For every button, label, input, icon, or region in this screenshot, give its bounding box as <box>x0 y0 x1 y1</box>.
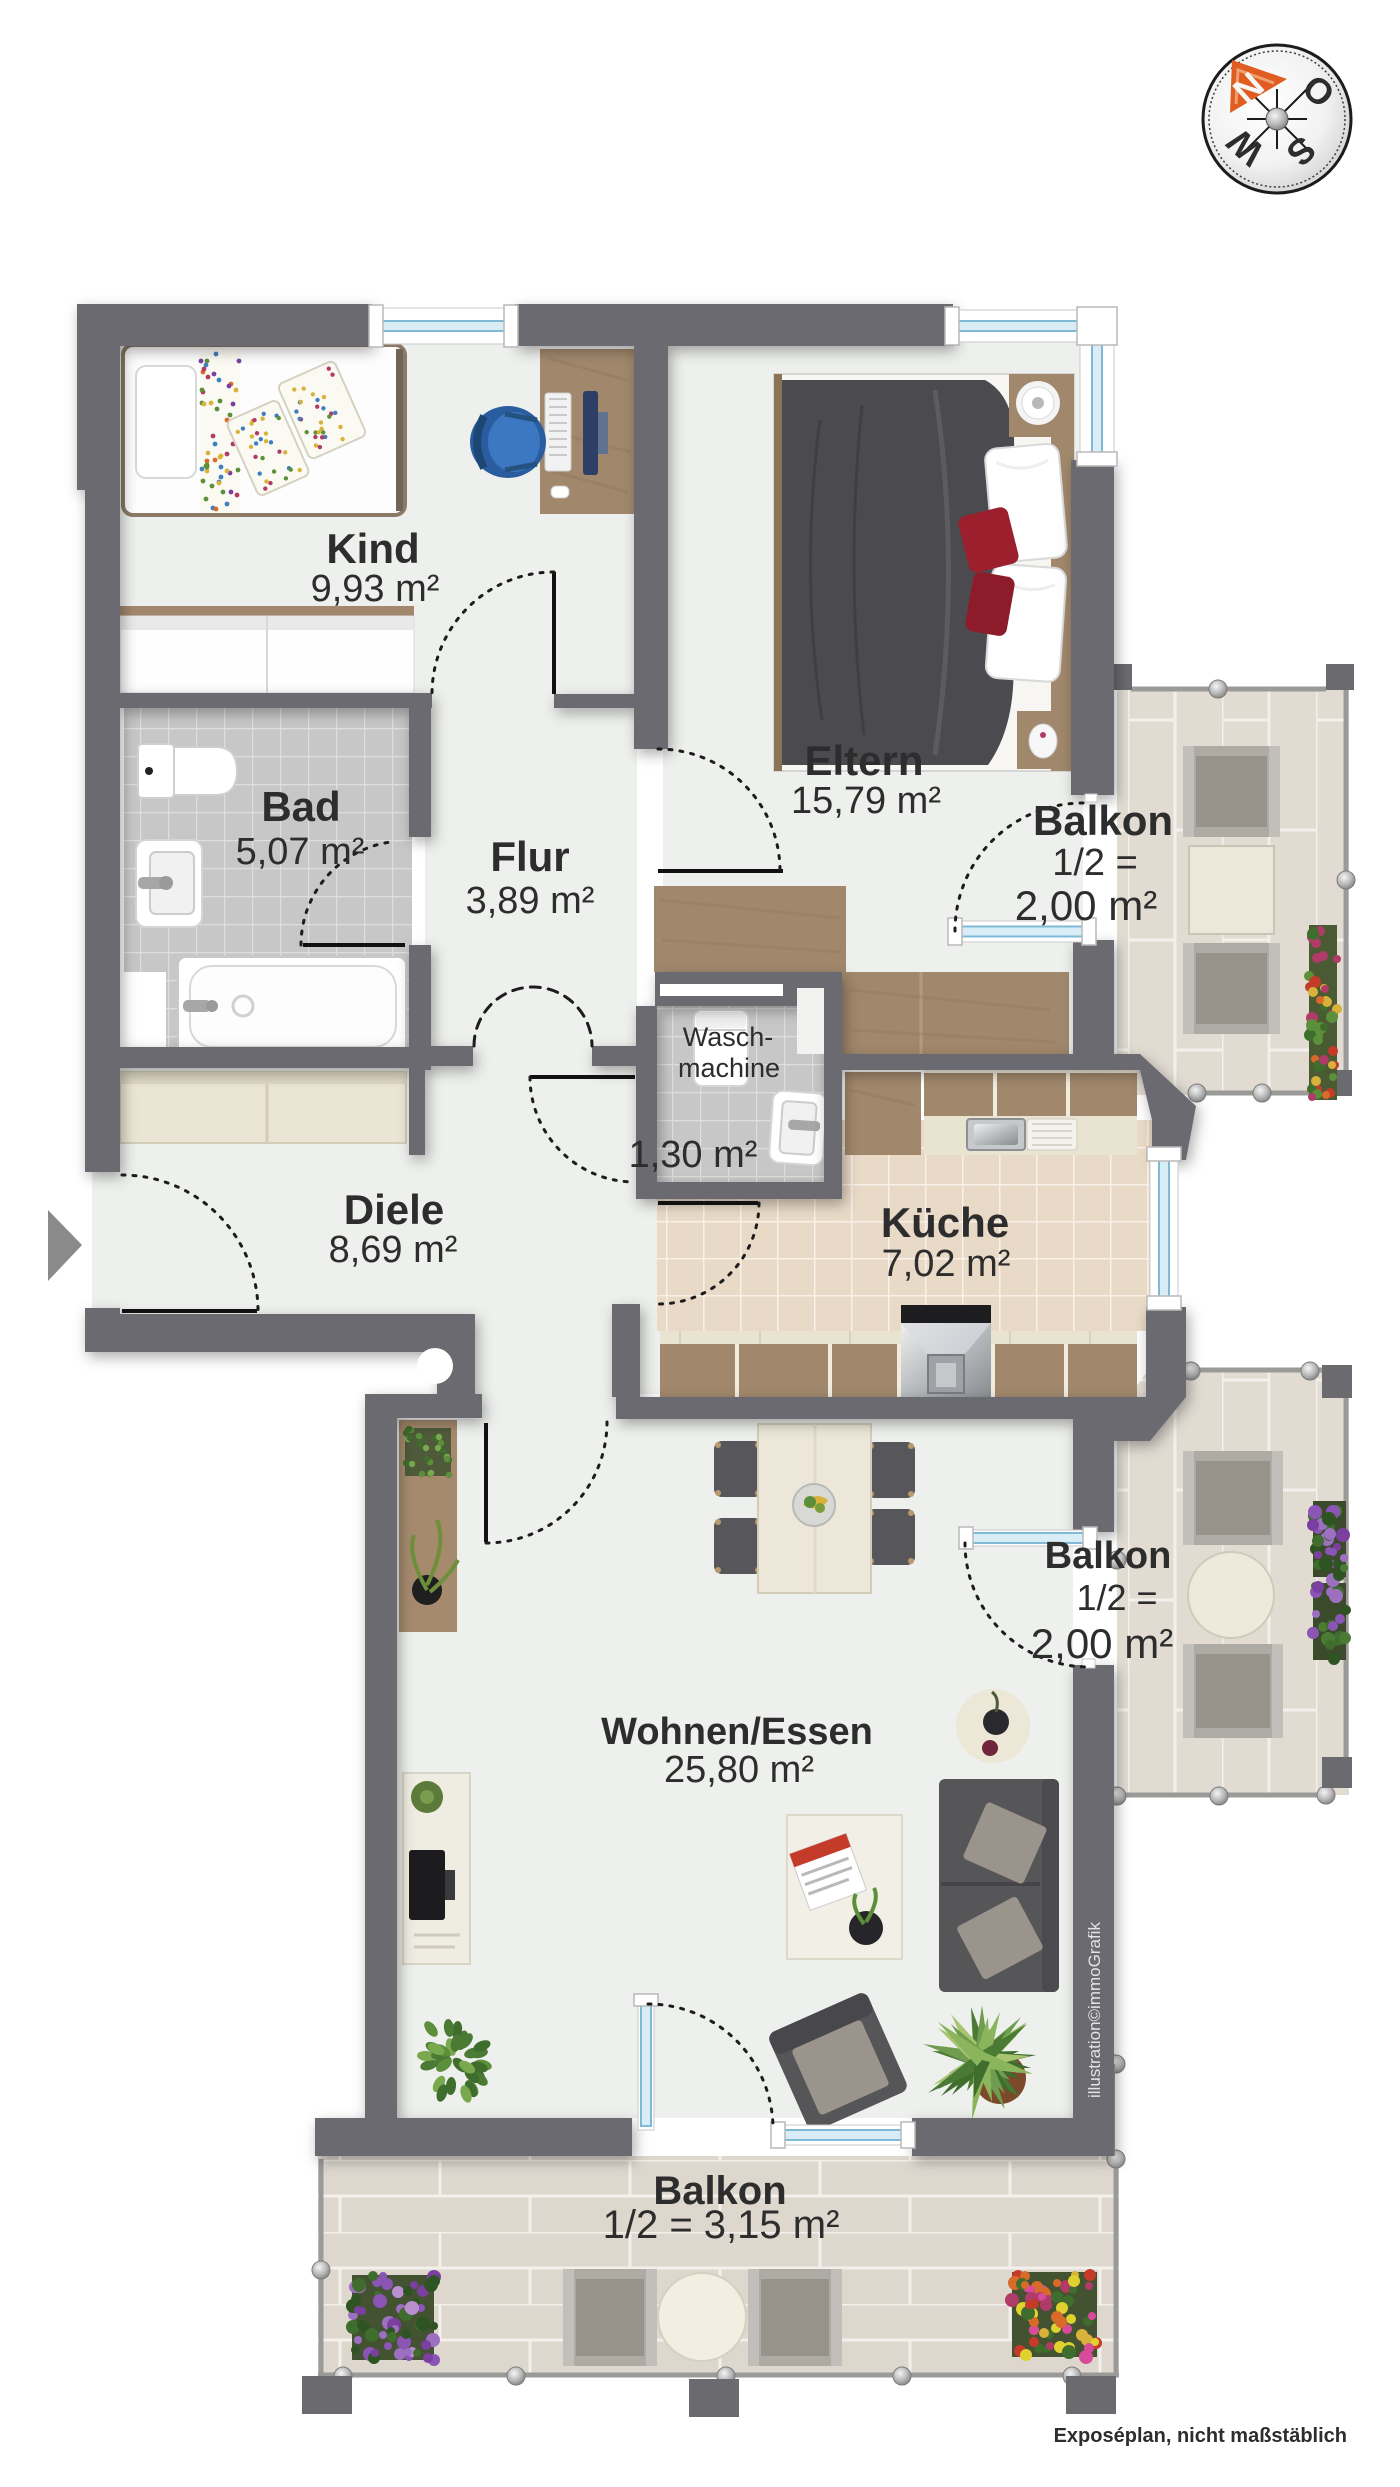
svg-text:illustration©immoGrafik: illustration©immoGrafik <box>1085 1922 1104 2098</box>
svg-text:Wasch-: Wasch- <box>683 1022 774 1052</box>
svg-text:1/2 =: 1/2 = <box>1076 1577 1157 1618</box>
svg-text:15,79 m²: 15,79 m² <box>791 780 941 822</box>
svg-text:1,30 m²: 1,30 m² <box>629 1134 758 1176</box>
svg-text:1/2 = 3,15 m²: 1/2 = 3,15 m² <box>603 2203 840 2247</box>
svg-text:Eltern: Eltern <box>804 737 923 784</box>
svg-text:Flur: Flur <box>490 833 569 880</box>
svg-text:Exposéplan, nicht maßstäblich: Exposéplan, nicht maßstäblich <box>1054 2425 1347 2447</box>
svg-text:7,02 m²: 7,02 m² <box>882 1243 1011 1285</box>
svg-text:Balkon: Balkon <box>1033 797 1173 844</box>
svg-text:machine: machine <box>678 1053 780 1083</box>
svg-text:Balkon: Balkon <box>1045 1535 1172 1577</box>
svg-text:2,00 m²: 2,00 m² <box>1031 1620 1173 1667</box>
svg-text:25,80 m²: 25,80 m² <box>664 1749 814 1791</box>
svg-text:3,89 m²: 3,89 m² <box>466 880 595 922</box>
svg-text:Küche: Küche <box>881 1199 1009 1246</box>
svg-text:2,00 m²: 2,00 m² <box>1015 882 1157 929</box>
svg-text:Wohnen/Essen: Wohnen/Essen <box>601 1711 873 1753</box>
svg-text:Diele: Diele <box>344 1186 444 1233</box>
svg-text:Bad: Bad <box>261 783 340 830</box>
svg-text:1/2 =: 1/2 = <box>1052 842 1138 884</box>
svg-text:5,07 m²: 5,07 m² <box>236 831 365 873</box>
svg-text:Kind: Kind <box>326 525 419 572</box>
svg-text:8,69 m²: 8,69 m² <box>329 1229 458 1271</box>
svg-text:9,93 m²: 9,93 m² <box>311 568 440 610</box>
